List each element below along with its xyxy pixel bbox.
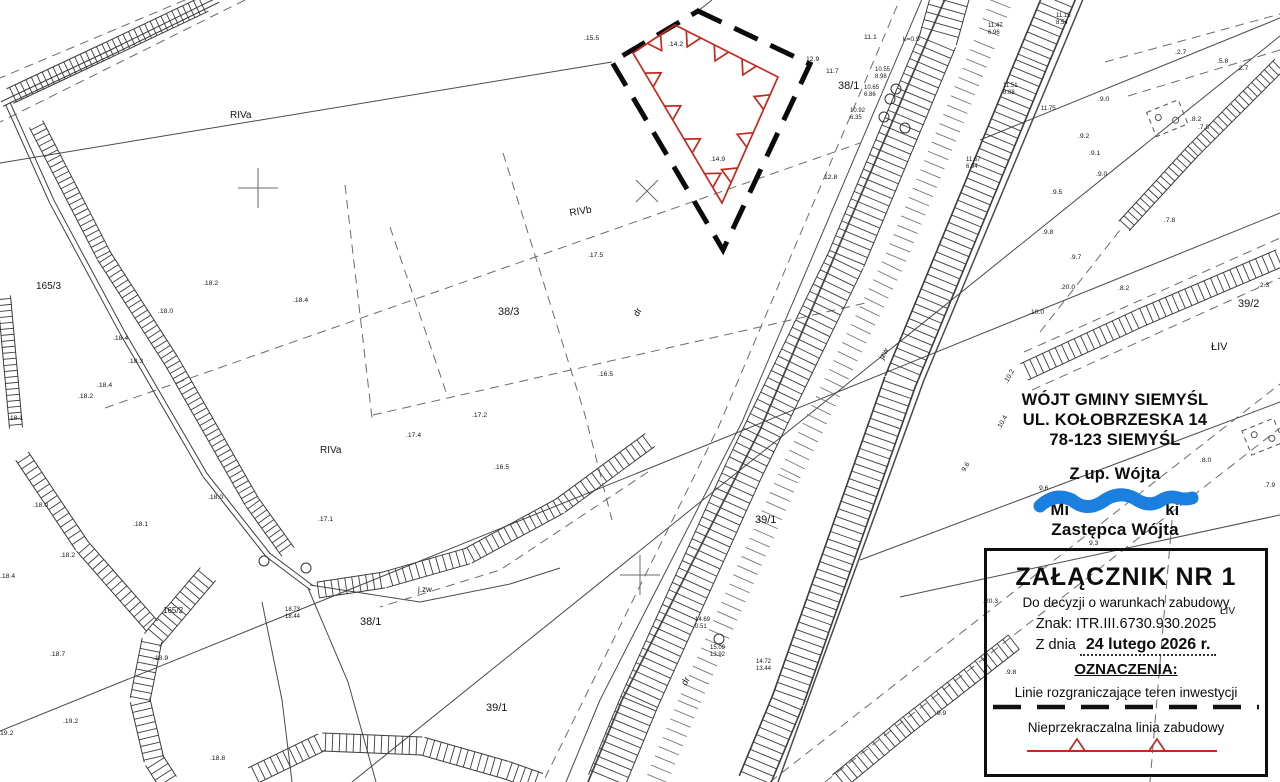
band-line [1169, 167, 1179, 176]
band-line [599, 748, 634, 763]
band-line [742, 556, 762, 565]
band-line [133, 683, 153, 687]
band-line [509, 762, 543, 774]
band-line [94, 246, 107, 253]
band-line [1243, 264, 1250, 281]
band-line [757, 399, 791, 416]
band-line [102, 570, 113, 580]
band-line [1136, 202, 1146, 211]
band-line [785, 660, 815, 671]
band-line [22, 461, 34, 469]
band-line [209, 434, 222, 441]
band-line [873, 411, 903, 422]
band-line [775, 363, 809, 380]
band-line [457, 748, 462, 765]
band-line [279, 544, 291, 553]
band-line [1197, 69, 1280, 157]
legend-symbol1-label: Linie rozgraniczające teren inwestycji [987, 685, 1265, 700]
band-line [878, 737, 889, 751]
band-line [820, 562, 850, 573]
band-line [750, 538, 770, 547]
band-line [140, 648, 160, 652]
band-line [1222, 112, 1232, 122]
map-label: .19.2 [63, 718, 78, 725]
band-line [449, 553, 453, 568]
band-line [596, 756, 631, 771]
band-line [849, 479, 879, 490]
band-line [1264, 70, 1274, 80]
band-line [864, 298, 884, 308]
band-line [603, 465, 612, 478]
band-line [522, 517, 530, 531]
band-line [151, 763, 168, 774]
band-line [112, 275, 125, 283]
map-label: RIVa [320, 445, 342, 456]
band-line [881, 388, 911, 399]
band-line [420, 755, 504, 779]
band-line [5, 382, 18, 383]
map-label: .18.0 [208, 494, 223, 501]
band-line [0, 310, 12, 311]
band-line [807, 599, 837, 610]
band-line [137, 728, 156, 733]
map-label: .14.9 [710, 156, 725, 163]
band-line [1148, 189, 1158, 198]
stamp-street: UL. KOŁOBRZESKA 14 [998, 410, 1232, 430]
band-line [72, 536, 84, 544]
band-line [77, 214, 90, 221]
band-line [50, 161, 63, 168]
map-label: .16.5 [494, 464, 509, 471]
band-line [774, 483, 794, 492]
band-line [29, 472, 41, 480]
band-line [269, 529, 281, 538]
band-line [1218, 116, 1228, 126]
band-line [852, 471, 882, 482]
band-line [352, 577, 354, 593]
band-line [436, 557, 440, 572]
band-line [1252, 82, 1262, 92]
band-line [182, 387, 195, 394]
map-label: 6.35 [850, 115, 862, 121]
band-line [590, 770, 625, 782]
legend-title: ZAŁĄCZNIK NR 1 [987, 563, 1265, 592]
map-label: .18.4 [293, 297, 308, 304]
band-line [267, 557, 311, 590]
band-line [1120, 220, 1130, 229]
band-line [8, 406, 21, 407]
band-line [637, 440, 646, 453]
band-line [6, 388, 19, 389]
band-line [436, 742, 441, 759]
band-line [1131, 312, 1139, 328]
map-label: .17.1 [318, 516, 333, 523]
band-line [924, 20, 961, 30]
band-line [141, 320, 154, 328]
map-label: 11.1 [864, 34, 877, 41]
band-line [1260, 74, 1270, 84]
band-line [513, 765, 519, 782]
band-line [429, 559, 433, 574]
band-line [69, 198, 82, 205]
band-line [882, 262, 902, 272]
band-line [884, 733, 895, 747]
map-label: .18.2 [78, 393, 93, 400]
stamp-authorization: Z up. Wójta [998, 464, 1232, 484]
band-line [450, 746, 455, 763]
legend-symbols-heading: OZNACZENIA: [987, 661, 1265, 678]
map-label: 13.44 [756, 666, 772, 672]
band-line [905, 207, 925, 215]
legend-reference: Znak: ITR.III.6730.930.2025 [987, 616, 1265, 632]
band-line [1030, 359, 1038, 375]
band-line [803, 387, 915, 705]
band-line [1165, 297, 1172, 314]
band-line [498, 531, 506, 545]
band-line [1093, 330, 1101, 346]
band-line [1055, 348, 1063, 364]
band-line [1201, 133, 1211, 143]
map-label: .9.2 [1078, 133, 1090, 140]
band-line [733, 575, 753, 584]
band-line [1269, 65, 1279, 75]
band-line [1247, 87, 1257, 97]
band-line [865, 433, 895, 444]
band-line [317, 582, 319, 598]
band-line [1197, 138, 1207, 148]
band-line [947, 105, 967, 113]
band-line [953, 678, 964, 692]
band-line [322, 751, 422, 755]
band-line [606, 733, 641, 748]
band-line [0, 316, 12, 317]
band-line [876, 403, 906, 414]
band-line [143, 617, 154, 627]
band-line [1156, 180, 1166, 189]
band-line [1177, 158, 1187, 167]
band-line [145, 325, 158, 333]
band-line [631, 444, 640, 457]
band-line [324, 581, 326, 597]
band-line [1, 334, 14, 335]
band-line [931, 695, 942, 709]
map-label: 38/3 [498, 306, 519, 318]
band-line [901, 216, 921, 224]
band-line [678, 700, 698, 708]
band-line [86, 230, 99, 237]
band-line [325, 733, 326, 751]
band-line [516, 521, 524, 535]
band-line [41, 490, 53, 498]
band-line [97, 565, 108, 575]
map-label: 11.75 [1041, 106, 1056, 112]
band-line [778, 356, 812, 373]
map-label: .9.0 [1098, 96, 1110, 103]
band-line [526, 770, 532, 782]
band-line [844, 494, 874, 505]
map-label: 10.65 [864, 85, 880, 91]
band-line [956, 0, 970, 45]
band-line [0, 322, 13, 323]
map-label: 38/1 [360, 616, 381, 628]
band-line [1172, 295, 1179, 312]
band-line [897, 225, 917, 233]
band-line [229, 470, 242, 477]
band-line [836, 516, 866, 527]
band-line [124, 331, 207, 474]
band-line [133, 708, 152, 713]
band-line [725, 593, 745, 602]
band-line [116, 280, 129, 288]
band-line [188, 397, 201, 404]
map-label: .18.0 [158, 308, 173, 315]
band-line [176, 377, 189, 384]
band-line [479, 541, 487, 555]
band-line [612, 719, 647, 734]
band-line [803, 423, 823, 433]
map-label: k=0.9 [903, 36, 920, 43]
band-line [319, 588, 385, 598]
band-line [158, 345, 171, 353]
map-label: 10.92 [850, 108, 866, 114]
band-line [144, 756, 163, 761]
band-line [295, 745, 303, 761]
band-line [851, 324, 871, 334]
band-line [142, 749, 161, 754]
band-line [936, 691, 947, 705]
band-line [775, 690, 805, 701]
band-line [103, 260, 116, 268]
band-line [547, 504, 555, 518]
map-label: 9.3 [1089, 540, 1099, 547]
band-line [1124, 216, 1134, 225]
band-line [206, 429, 219, 436]
band-line [958, 674, 969, 688]
band-line [154, 340, 167, 348]
band-line [626, 684, 661, 700]
band-line [28, 452, 88, 542]
band-line [395, 568, 399, 583]
band-line [131, 696, 151, 700]
map-label: 6.94 [966, 164, 978, 170]
band-line [780, 675, 810, 686]
band-line [367, 735, 368, 753]
band-line [113, 2, 219, 54]
band-line [244, 496, 257, 503]
band-line [75, 209, 88, 216]
band-line [841, 501, 871, 512]
band-line [868, 426, 898, 437]
band-line [909, 712, 920, 726]
band-line [128, 300, 141, 308]
band-line [1249, 261, 1256, 278]
band-line [203, 423, 216, 430]
band-line [91, 241, 104, 248]
band-line [1144, 194, 1154, 203]
band-line [111, 581, 122, 591]
band-line [873, 280, 893, 290]
band-line [8, 412, 21, 413]
band-line [1112, 321, 1120, 337]
map-label: .18.4 [0, 573, 15, 580]
band-line [13, 57, 111, 103]
map-label: 11.67 [966, 157, 981, 163]
band-line [656, 619, 691, 635]
band-line [791, 645, 821, 656]
band-line [218, 449, 231, 456]
band-line [609, 460, 618, 473]
map-label: .7.8 [1198, 124, 1210, 131]
map-label: 0.51 [695, 624, 707, 630]
band-line [633, 670, 668, 686]
map-label: 14.72 [756, 659, 772, 665]
band-line [1214, 121, 1224, 131]
band-line [1125, 315, 1133, 331]
band-line [430, 740, 435, 757]
band-line [814, 577, 844, 588]
band-line [29, 127, 97, 259]
map-label: 12.9 [806, 56, 819, 63]
band-line [642, 436, 651, 449]
map-label: .16.5 [598, 371, 613, 378]
band-line [785, 459, 805, 469]
band-line [203, 477, 266, 557]
band-line [816, 396, 836, 406]
band-line [1178, 292, 1185, 309]
band-line [55, 171, 68, 178]
band-line [1042, 354, 1050, 370]
band-line [135, 310, 148, 318]
band-line [66, 193, 79, 200]
map-label: .18.1 [133, 521, 148, 528]
band-line [974, 40, 994, 48]
band-line [1049, 351, 1057, 367]
band-line [913, 188, 933, 196]
band-line [729, 584, 749, 593]
band-line [42, 145, 55, 152]
band-line [106, 265, 119, 273]
band-line [649, 633, 684, 649]
band-line [1061, 345, 1069, 361]
band-line [251, 505, 263, 514]
band-line [442, 555, 446, 570]
map-label: .9.9 [935, 710, 947, 717]
band-line [132, 305, 145, 313]
band-line [2, 340, 15, 341]
map-label: .18.3 [128, 358, 143, 365]
band-line [699, 524, 734, 540]
band-line [57, 513, 69, 521]
band-line [5, 376, 18, 377]
band-line [962, 68, 982, 76]
map-label: 8.54 [1056, 20, 1068, 26]
stamp-office: WÓJT GMINY SIEMYŚL [998, 390, 1232, 410]
band-line [653, 626, 688, 642]
band-line [416, 737, 417, 755]
band-line [909, 197, 929, 205]
band-line [1165, 172, 1175, 181]
map-label: .17.4 [406, 432, 421, 439]
band-line [943, 114, 963, 122]
band-line [1243, 91, 1253, 101]
band-line [857, 755, 868, 769]
band-line [1153, 303, 1160, 320]
map-label: .7.9 [1264, 482, 1276, 489]
band-line [1173, 163, 1183, 172]
map-label: 39/2 [1238, 298, 1259, 310]
band-line [258, 515, 270, 524]
band-line [308, 739, 316, 755]
band-line [194, 408, 207, 415]
band-line [922, 27, 959, 37]
band-line [503, 778, 537, 782]
band-line [761, 392, 795, 409]
band-line [771, 370, 805, 387]
band-line [867, 746, 878, 760]
map-label: .18.4 [113, 335, 128, 342]
map-label: 39/1 [486, 702, 507, 714]
band-line [60, 519, 72, 527]
map-label: .2.3 [1258, 282, 1270, 289]
band-line [463, 750, 468, 767]
band-line [1275, 250, 1280, 267]
band-line [409, 565, 413, 580]
map-label: 6.96 [988, 30, 1000, 36]
map-label: .2.7 [1237, 65, 1249, 72]
band-line [615, 711, 650, 726]
band-line [212, 439, 225, 446]
band-line [64, 187, 77, 194]
band-line [920, 704, 931, 718]
legend-date-value: 24 lutego 2026 r. [1080, 636, 1217, 656]
band-line [137, 662, 157, 666]
band-line [580, 481, 589, 494]
blue-redaction-scribble [1030, 486, 1206, 522]
band-line [1198, 284, 1205, 301]
map-label: .8.2 [1118, 285, 1130, 292]
band-line [37, 484, 49, 492]
band-line [80, 219, 93, 226]
band-line [1204, 281, 1211, 298]
band-line [970, 50, 990, 58]
map-label: .10.2 [1003, 368, 1017, 385]
band-line [681, 694, 701, 703]
band-line [1273, 61, 1280, 71]
band-line [322, 733, 422, 737]
band-line [702, 517, 737, 533]
band-line [1159, 300, 1166, 317]
band-line [964, 669, 975, 683]
band-line [314, 736, 322, 752]
band-line [709, 502, 744, 518]
band-line [339, 734, 340, 752]
band-line [916, 179, 936, 187]
band-line [796, 629, 826, 640]
band-line [847, 333, 867, 343]
band-line [109, 270, 122, 278]
band-line [422, 561, 426, 576]
band-line [2, 346, 15, 347]
band-line [122, 290, 135, 298]
band-line [789, 334, 823, 351]
band-line [1036, 356, 1044, 372]
band-line [151, 335, 164, 343]
band-line [593, 763, 628, 778]
legend-symbol2-label: Nieprzekraczalna linia zabudowy [987, 720, 1265, 735]
band-line [18, 455, 30, 463]
band-line [1119, 318, 1127, 334]
map-label: 18.44 [285, 614, 301, 620]
